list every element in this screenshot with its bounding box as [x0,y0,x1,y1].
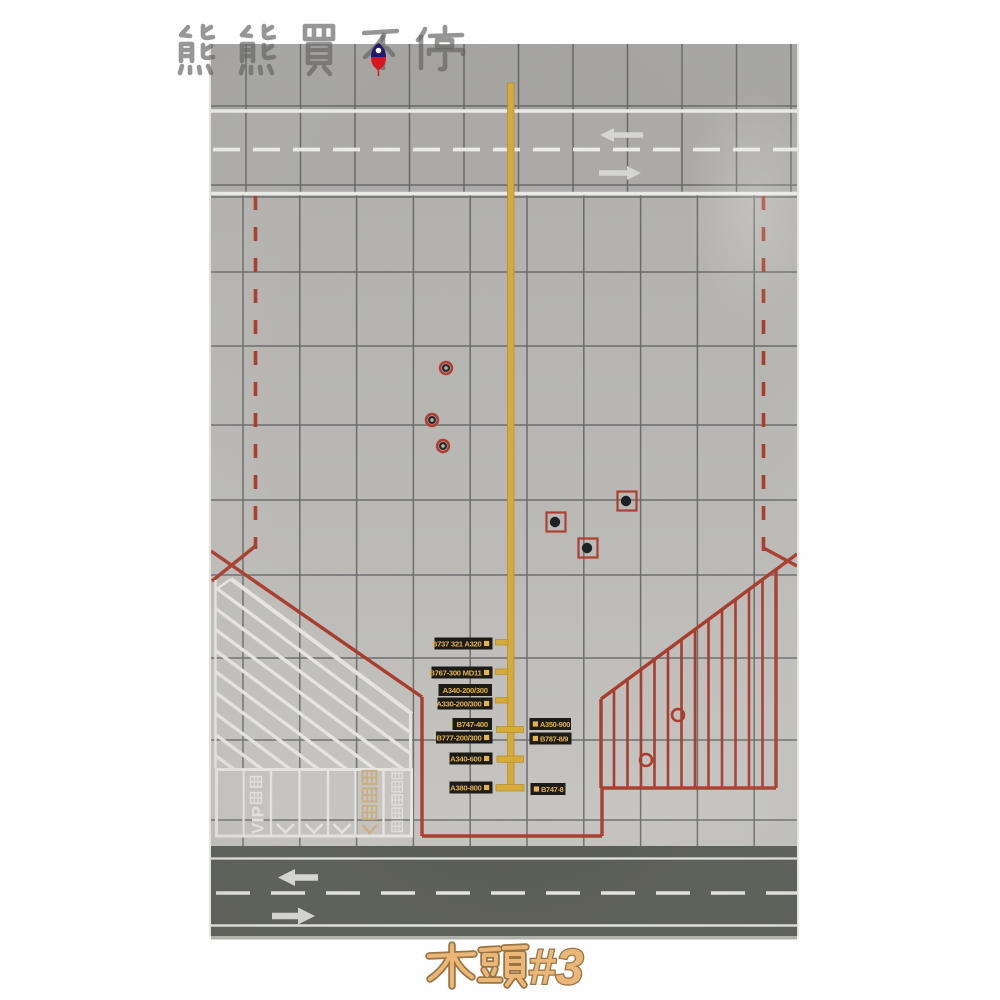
svg-text:#3: #3 [528,939,584,995]
